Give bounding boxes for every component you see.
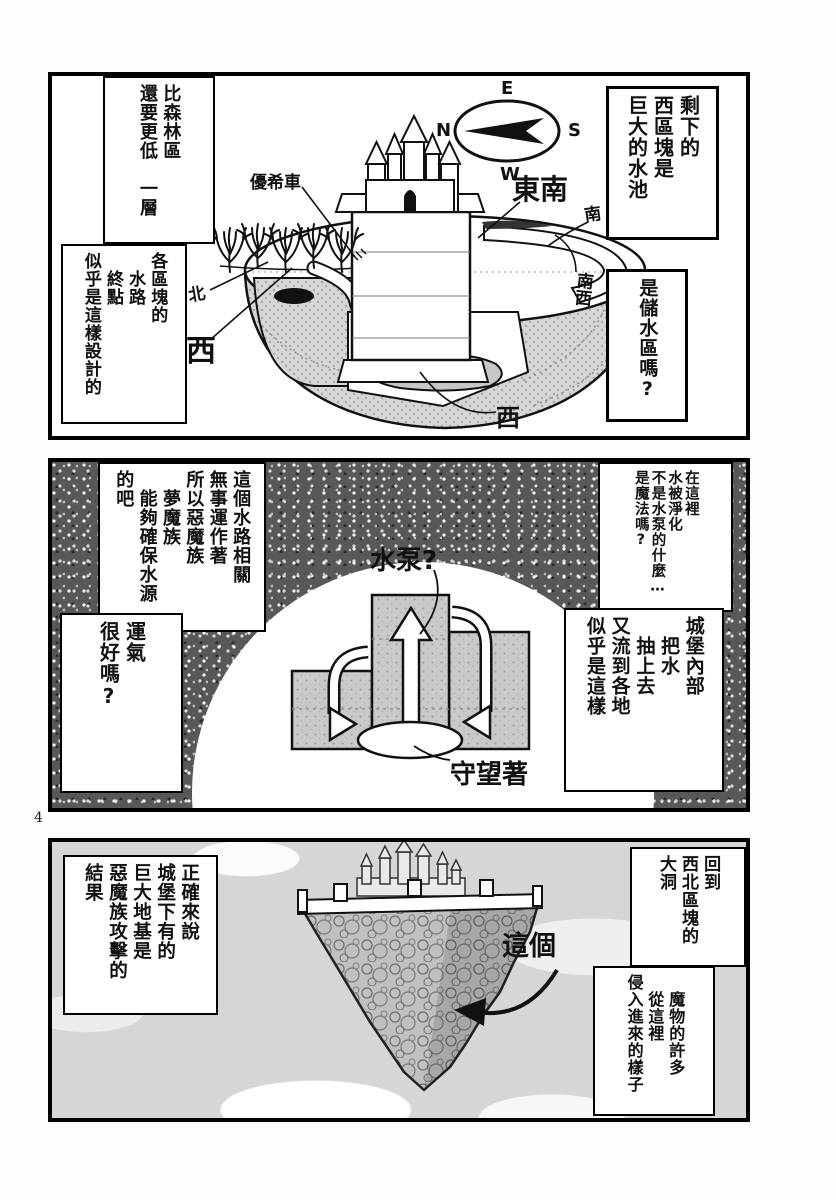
bubble-lower-than-forest: 比森林區 還要更低 一層 — [103, 76, 215, 244]
label-pump: 水泵? — [370, 540, 437, 577]
compass-n: N — [436, 120, 451, 141]
label-yuki-cart: 優希車 — [250, 168, 301, 193]
panel-castle-overview: E N S W 優希車 東南 南 南西 西 北 西 比森林區 還要更低 一層 各… — [48, 72, 750, 440]
label-southeast: 東南 — [512, 168, 568, 208]
compass-e: E — [501, 78, 513, 99]
caption-northwest-hole: 回到 西北區塊的 大洞 — [630, 847, 746, 967]
caption-foundation-attack: 正確來說 城堡下有的 巨大地基是 惡魔族攻擊的 結果 — [63, 855, 218, 1015]
label-south: 南 — [582, 199, 602, 226]
caption-storage-area: 是儲水區嗎? — [606, 269, 688, 422]
caption-monsters-invade: 魔物的許多 從這裡 侵入進來的樣子 — [593, 966, 715, 1116]
label-west-left: 西 — [186, 326, 216, 370]
label-west-bottom: 西 — [496, 398, 520, 433]
panel-floating-island: 這個 正確來說 城堡下有的 巨大地基是 惡魔族攻擊的 結果 回到 西北區塊的 大… — [48, 838, 750, 1122]
page-number: 4 — [34, 810, 43, 826]
pump-eye — [358, 722, 462, 758]
compass-rose — [455, 101, 559, 161]
bubble-water-purified: 在這裡 水被淨化 不是水泵的什麼… 是魔法嗎? — [598, 462, 733, 612]
panel-pump-diagram: 水泵? 守望著 這個水路相關 無事運作著 所以惡魔族 夢魔族 能夠確保水源 的吧… — [48, 458, 750, 812]
small-pond — [274, 288, 314, 304]
bubble-good-luck: 運氣 很好嗎? — [60, 613, 183, 793]
label-watching: 守望著 — [450, 754, 528, 791]
label-southwest: 南西 — [568, 271, 596, 307]
bubble-waterway-secured: 這個水路相關 無事運作著 所以惡魔族 夢魔族 能夠確保水源 的吧 — [98, 462, 266, 632]
caption-west-block-pool: 剩下的 西區塊是 巨大的水池 — [606, 86, 719, 240]
bubble-castle-pumps-water: 城堡內部 把水 抽上去 又流到各地 似乎是這樣 — [564, 608, 724, 792]
compass-s: S — [568, 120, 581, 141]
manga-page: E N S W 優希車 東南 南 南西 西 北 西 比森林區 還要更低 一層 各… — [0, 0, 836, 1200]
label-this-one: 這個 — [502, 924, 556, 963]
bubble-waterway-endpoint: 各區塊的 水路 終點 似乎是這樣設計的 — [61, 244, 187, 424]
